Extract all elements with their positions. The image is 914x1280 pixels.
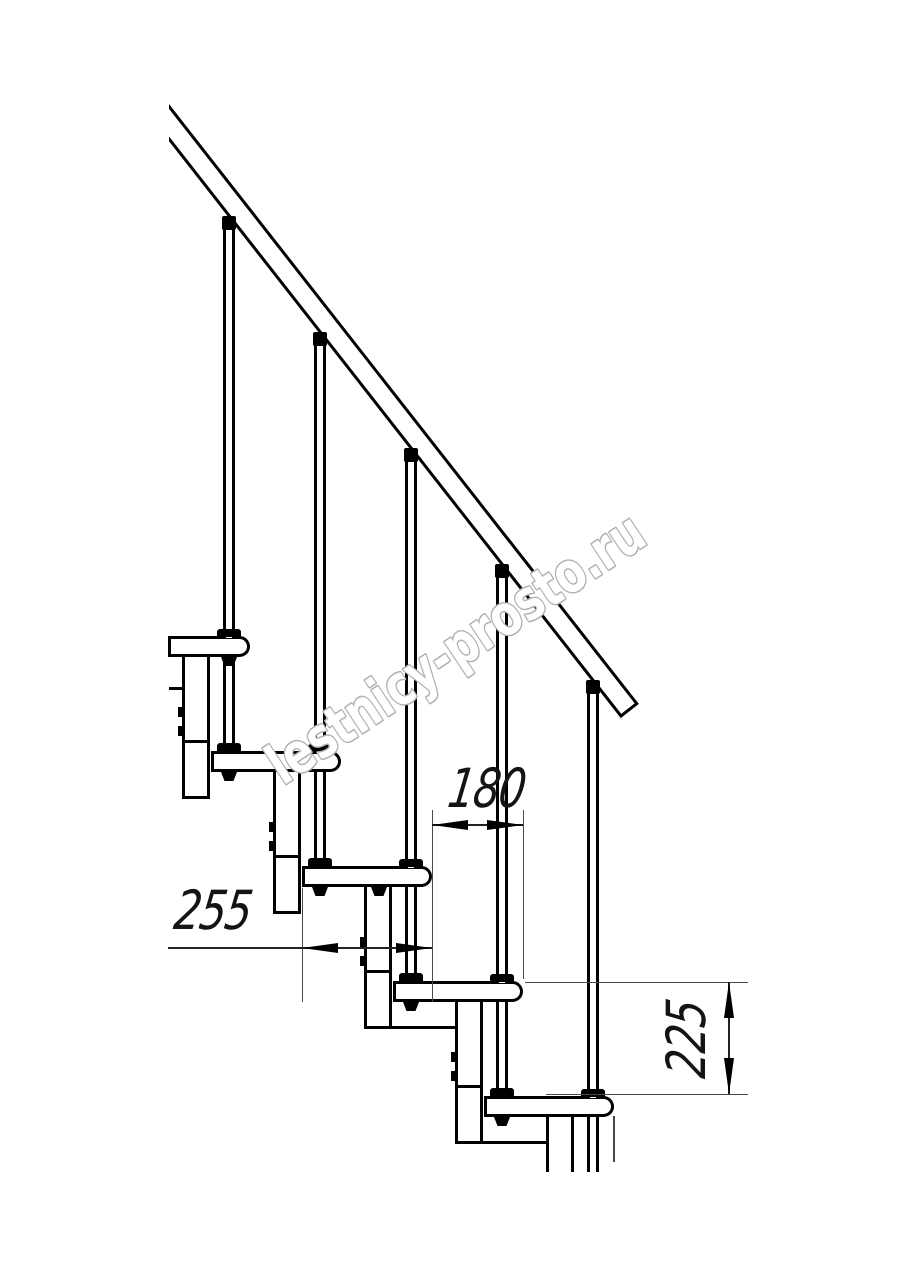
rod-end-foot-on-tread-2 [217,744,241,752]
support-rod-below-tread-3 [405,887,417,974]
d180-arrowhead-1 [487,820,523,830]
tread-5-nut [494,1117,510,1126]
module-3-base-bracket [392,1026,456,1029]
baluster-5-rod [587,691,599,1098]
d225-arrowhead-1 [724,1058,734,1094]
module-1 [182,655,210,799]
module-4-base-bracket [483,1141,547,1144]
module-3-bolt-lower [360,956,367,966]
baluster-5-handrail-connector [586,680,600,694]
baluster-3-handrail-connector [404,448,418,462]
module-1-bolt-lower [178,726,185,736]
baluster-1-foot [217,629,241,637]
module-3 [364,885,392,1029]
d180-label: 180 [446,762,516,808]
module-3-joint-line [364,970,392,973]
baluster-4-handrail-connector [495,564,509,578]
support-rod-below-tread-4 [496,1002,508,1089]
tread-3-nut [312,887,328,896]
tread-2 [211,751,341,772]
module-5-left-edge [546,1115,549,1172]
d255-label: 255 [172,884,249,932]
baluster-3-rod [405,459,417,868]
module-1-bolt-upper [178,707,185,717]
module-4 [455,1000,483,1144]
module-4-bolt-lower [451,1071,458,1081]
d255-extension-line-1 [432,810,433,1002]
d180-extension-line-0 [523,810,524,979]
rod-end-foot-on-tread-3 [308,859,332,867]
module-2-bolt-upper [269,822,276,832]
support-rod-below-tread-2 [314,772,326,859]
tread-1 [168,636,250,657]
support-rod-below-tread-1 [223,657,235,744]
module-1-joint-line [182,740,210,743]
module-3-bolt-upper [360,937,367,947]
baluster-4-foot [490,974,514,982]
d225-extension-line-0 [525,982,748,983]
tread-4 [393,981,523,1002]
baluster-2-handrail-connector [313,332,327,346]
d255-arrowhead-1 [396,943,432,953]
baluster-1-handrail-connector [222,216,236,230]
baluster-2-rod [314,343,326,753]
handrail-clip [169,88,714,768]
rod-end-foot-on-tread-5 [490,1089,514,1097]
rod-end-foot-on-tread-4 [399,974,423,982]
d225-extension-line-1 [546,1094,748,1095]
module-4-bolt-upper [451,1052,458,1062]
technical-drawing-canvas: 255180225 lestnicy-prosto.ru [0,0,914,1280]
tread-4-nut [403,1002,419,1011]
tread-2-nut [221,772,237,781]
module-4-joint-line [455,1085,483,1088]
tread-3 [302,866,432,887]
staircase-side-view-figure: 255180225 [0,0,914,1280]
baluster-2-foot [308,744,332,752]
baluster-1-rod [223,227,235,638]
module-2 [273,770,301,914]
tread-5 [484,1096,614,1117]
module-5-right-edge [571,1115,574,1172]
baluster-3-foot [399,859,423,867]
d255-arrowhead-0 [302,943,338,953]
d255-dimension-line [168,947,432,949]
baluster-5-foot [581,1089,605,1097]
thin-drop-line [613,1116,615,1162]
d225-label: 225 [660,996,714,1082]
module-2-joint-line [273,855,301,858]
module-2-bolt-lower [269,841,276,851]
support-rod-below-tread-5 [587,1117,599,1172]
handrail [169,104,639,718]
cropped-line-tick [169,687,182,690]
d225-arrowhead-0 [724,982,734,1018]
d180-arrowhead-0 [432,820,468,830]
